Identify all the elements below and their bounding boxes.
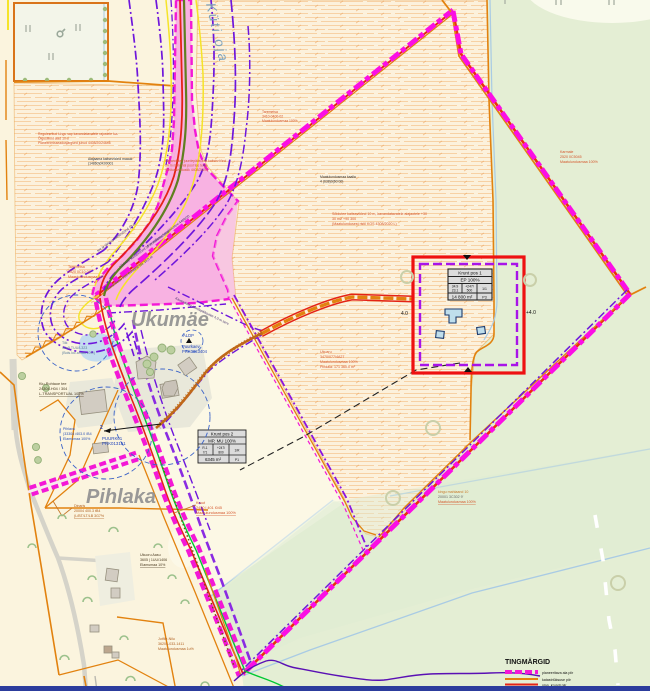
svg-text:Kiu-Rohtaoe tee: Kiu-Rohtaoe tee — [39, 382, 66, 386]
svg-text:EP 100%: EP 100% — [460, 278, 479, 283]
svg-text:MP, MU 100%: MP, MU 100% — [208, 438, 236, 443]
svg-text:(Maatulundusest ristil KOS 430: (Maatulundusest ristil KOS 4308/2020 L) — [332, 222, 397, 226]
svg-text:20004 400.3 tB4: 20004 400.3 tB4 — [74, 509, 100, 513]
svg-text:20001 3C302 9': 20001 3C302 9' — [438, 495, 464, 499]
svg-text:TINGMÄRGID: TINGMÄRGID — [505, 658, 550, 666]
svg-text:2520 0C5045: 2520 0C5045 — [560, 155, 582, 159]
svg-text:Maatulundusmaa 1u%: Maatulundusmaa 1u% — [158, 647, 195, 651]
svg-text:Reguleeritud kingu sap kavanda: Reguleeritud kingu sap kavandatavatele r… — [38, 132, 118, 136]
svg-text:kingu mahlaand 10: kingu mahlaand 10 — [438, 490, 468, 494]
svg-text:+247/: +247/ — [217, 446, 225, 450]
svg-text:Maatulundusmaa 100%: Maatulundusmaa 100% — [262, 119, 298, 123]
svg-text:Planeerimisseadusjärgsed juhud: Planeerimisseadusjärgsed juhud 4408/20/2… — [38, 141, 111, 145]
svg-text:Taremetsa: Taremetsa — [68, 265, 85, 269]
svg-text:14 800 m²: 14 800 m² — [452, 294, 473, 299]
svg-text:3605 | 1UU/1406: 3605 | 1UU/1406 — [140, 558, 167, 562]
svg-text:Maatulundusmaa kaalla: Maatulundusmaa kaalla — [320, 175, 356, 179]
svg-text:Krunt pos 2: Krunt pos 2 — [211, 431, 234, 436]
svg-text:2420 l 401 l045: 2420 l 401 l045 — [196, 506, 222, 510]
svg-text:Õiguslikud alad 10 u: Õiguslikud alad 10 u — [38, 136, 69, 141]
svg-text:10u5 TUU/L323: 10u5 TUU/L323 — [62, 346, 87, 350]
svg-text:2520 0C10 07: 2520 0C10 07 — [68, 270, 91, 274]
svg-text:Jutfile-Nilu: Jutfile-Nilu — [158, 637, 175, 641]
svg-text:Taremetsa: Taremetsa — [262, 110, 278, 114]
svg-text:23.1: 23.1 — [452, 289, 459, 293]
svg-text:planeeritava ala piir: planeeritava ala piir — [542, 671, 574, 675]
svg-text:2: 2 — [100, 425, 103, 431]
svg-text:Maastulundusmaa 13%: Maastulundusmaa 13% — [68, 275, 106, 279]
svg-text:Sõidutee kaitsevöönd 10 m, kav: Sõidutee kaitsevöönd 10 m, kavandatavate… — [332, 212, 427, 216]
svg-text:katastriüksuse piir: katastriüksuse piir — [542, 678, 572, 682]
svg-text:Kruut: Kruut — [196, 501, 206, 505]
svg-text:+4.0: +4.0 — [526, 310, 536, 316]
svg-text:Maatulundusmaa 100%: Maatulundusmaa 100% — [560, 160, 599, 164]
svg-text:P1: P1 — [235, 458, 239, 462]
svg-text:6345 m²: 6345 m² — [205, 457, 222, 462]
svg-text:24304-H04 / 304: 24304-H04 / 304 — [39, 387, 67, 391]
svg-text:3410-0400-02: 3410-0400-02 — [262, 115, 283, 119]
svg-text:Maatulundusmaa 100%: Maatulundusmaa 100% — [320, 360, 359, 364]
svg-text:Maatulundusmaa 100%: Maatulundusmaa 100% — [438, 500, 477, 504]
svg-text:3470/077/4A27: 3470/077/4A27 — [320, 355, 344, 359]
svg-text:500: 500 — [467, 289, 473, 293]
svg-text:Maatulundusmaa 100%: Maatulundusmaa 100% — [196, 511, 237, 515]
svg-text:30 m2 +90 300: 30 m2 +90 300 — [332, 217, 356, 221]
svg-text:R-1: R-1 — [202, 446, 207, 450]
svg-text:Kavandatav juurdepääsutee kait: Kavandatav juurdepääsutee kaitsevöönd — [165, 159, 226, 163]
svg-text:36204-033-1411: 36204-033-1411 — [158, 642, 184, 646]
svg-text:Pihlava: Pihlava — [63, 427, 75, 431]
svg-text:PRK0023404: PRK0023404 — [182, 349, 208, 354]
svg-text:Pindala: 171 360.0 m²: Pindala: 171 360.0 m² — [320, 365, 356, 369]
svg-text:ALDP: ALDP — [183, 333, 194, 338]
svg-text:Karmale: Karmale — [560, 150, 573, 154]
svg-text:4.0: 4.0 — [401, 311, 408, 317]
svg-text:(Ehitusseadustik 4408/2020): (Ehitusseadustik 4408/2020) — [165, 168, 208, 172]
svg-text:L-TRANSPORTUAL 102%: L-TRANSPORTUAL 102% — [39, 392, 84, 396]
svg-text:Elamumaa 10%: Elamumaa 10% — [140, 563, 166, 567]
svg-text:Alajaama kaitsevöönd maauk: Alajaama kaitsevöönd maauk — [88, 157, 133, 161]
svg-text:7/1: 7/1 — [203, 450, 208, 454]
svg-text:Tiik: Tiik — [62, 341, 68, 345]
svg-text:1/1: 1/1 — [482, 287, 487, 291]
svg-text:1/R: 1/R — [235, 448, 241, 452]
svg-text:Ukumäe: Ukumäe — [131, 309, 209, 331]
svg-text:(L/BT/LT/LB 3G7%: (L/BT/LT/LB 3G7% — [74, 514, 105, 518]
svg-text:Dinaris: Dinaris — [74, 504, 85, 508]
svg-text:800: 800 — [218, 450, 224, 454]
svg-text:Ukuoru Aasu: Ukuoru Aasu — [140, 553, 161, 557]
svg-text:(14860)0K00001: (14860)0K00001 — [88, 162, 113, 166]
svg-text:10 m mõlemal pool tee telge: 10 m mõlemal pool tee telge — [165, 164, 208, 168]
svg-text:PRK013151: PRK013151 — [102, 441, 126, 446]
svg-text:(33304 /403.0 /B4: (33304 /403.0 /B4 — [63, 432, 92, 436]
svg-text:4 (638)0(60:00): 4 (638)0(60:00) — [320, 180, 343, 184]
svg-text:Ukuaru: Ukuaru — [320, 350, 332, 354]
svg-text:Krunt pos 1: Krunt pos 1 — [458, 271, 482, 276]
svg-text:P3: P3 — [482, 295, 486, 299]
svg-text:(Bols.loc.amsa 10%): (Bols.loc.amsa 10%) — [62, 351, 95, 355]
svg-text:Pihlaka: Pihlaka — [86, 486, 156, 508]
svg-text:Elamumaa 100%: Elamumaa 100% — [63, 437, 91, 441]
